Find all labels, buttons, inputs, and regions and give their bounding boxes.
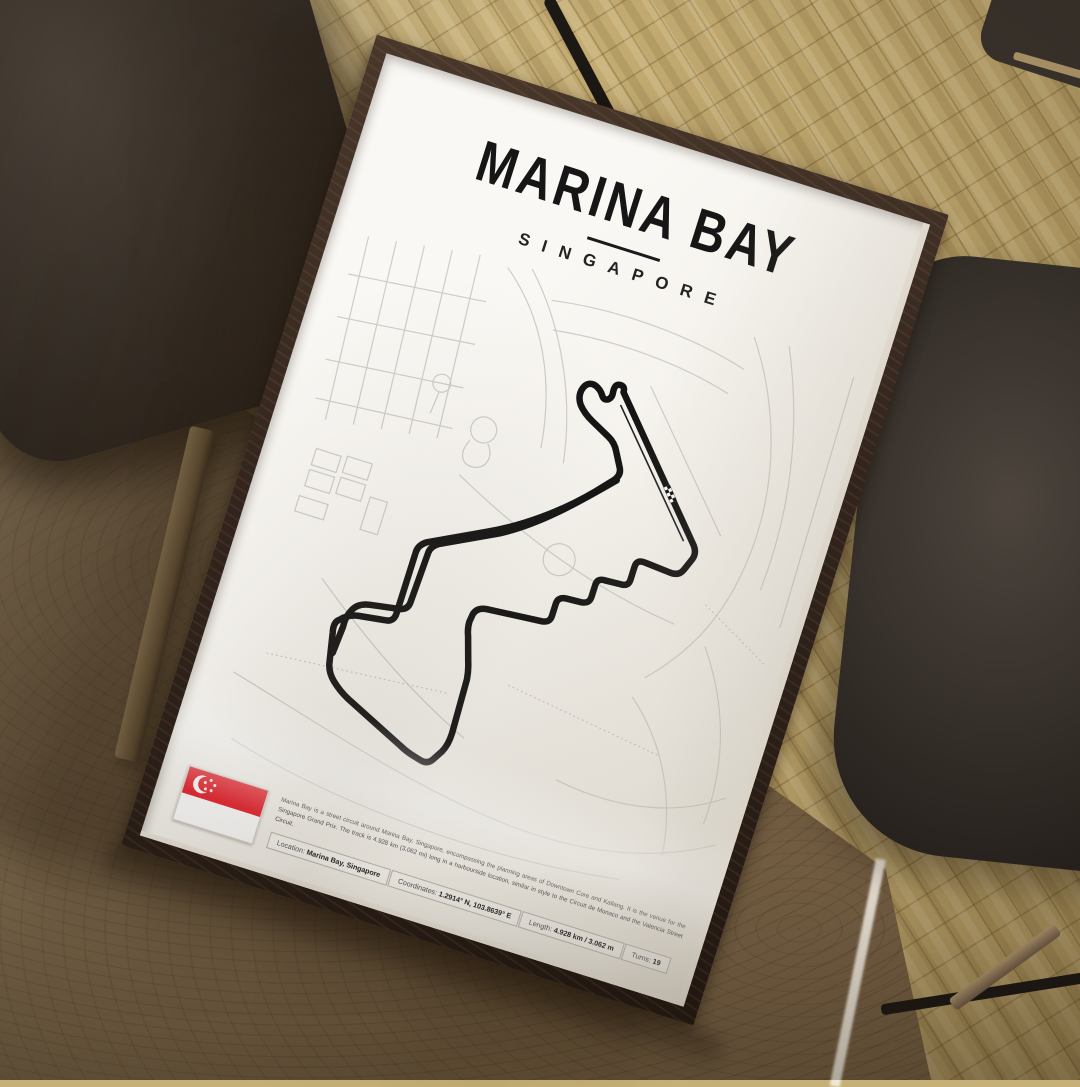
detail-length-label: Length: (528, 918, 554, 934)
track-path (303, 325, 736, 821)
pit-lane-line (587, 405, 717, 541)
detail-turns-label: Turns: (630, 950, 652, 965)
detail-turns-value: 19 (652, 957, 662, 968)
